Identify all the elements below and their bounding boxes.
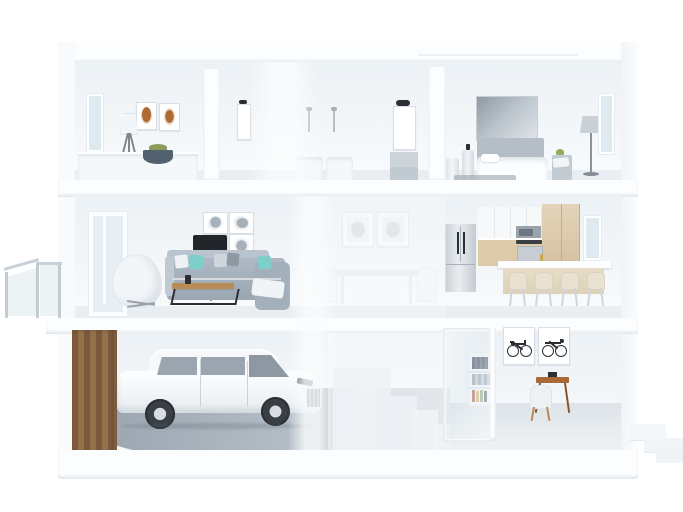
fridge-handle (457, 232, 459, 254)
guest-bowl (143, 150, 173, 164)
railing-post (58, 263, 61, 318)
bath-mirror-sconce (396, 100, 410, 106)
railing-glass-panel (40, 264, 59, 316)
right-exterior-wall (621, 42, 638, 454)
suv-mid-window (201, 357, 245, 375)
room-staircase (328, 333, 454, 450)
office-door-frame (490, 328, 495, 440)
guest-console (78, 152, 198, 180)
railing-top-rail (4, 258, 39, 270)
botanical-print-1 (203, 212, 228, 234)
cabinet-seam (494, 207, 495, 238)
sofa-pillow-teal-1 (188, 254, 203, 269)
bath-faucet-2-head (331, 107, 337, 111)
fridge-door-seam (460, 226, 461, 262)
botanical-print-2 (229, 212, 254, 234)
bar-stool (586, 272, 604, 306)
suv-door-seam (247, 361, 248, 407)
master-floor-lamp-base (583, 172, 599, 176)
office-glass-door (443, 328, 496, 442)
railing-post (5, 272, 8, 318)
master-wall-art (476, 96, 538, 141)
desk-laptop (548, 372, 557, 377)
island-decor (540, 254, 543, 261)
print-motif (208, 216, 223, 230)
cutaway-glare-band (248, 62, 318, 180)
guest-art-2 (159, 103, 180, 131)
bicycle-poster-2 (538, 327, 570, 365)
bike-drop-handlebar (560, 339, 564, 343)
stool-leg (561, 288, 565, 306)
coffee-table-frame (170, 289, 239, 305)
office-chair (530, 385, 552, 409)
floor-slab-1 (58, 180, 638, 196)
bath-mirror (393, 106, 416, 150)
bicycle-poster-1 (503, 327, 535, 365)
fridge-drawer-seam (446, 264, 475, 265)
coffee-table-item (185, 275, 191, 284)
master-floor-lamp-pole (590, 133, 592, 173)
guest-window (87, 94, 103, 152)
sofa-pillow-teal-2 (257, 255, 271, 269)
island-counter (498, 261, 611, 268)
guest-art-1-motif (141, 107, 152, 124)
master-window (599, 94, 614, 154)
railing-glass-panel (7, 268, 37, 316)
master-pillow (481, 154, 499, 162)
garage-wood-wall (72, 330, 117, 454)
master-bench-throw (553, 157, 570, 168)
railing-post (36, 262, 39, 318)
stool-leg (535, 288, 539, 306)
print-motif (234, 216, 249, 230)
guest-wall-relief (183, 108, 196, 126)
railing-top-rail (38, 262, 62, 265)
bike-wheel (542, 345, 554, 357)
stool-leg (574, 288, 578, 306)
cabinet-seam (510, 207, 511, 238)
room-kitchen (440, 196, 621, 318)
fridge-handle (463, 232, 465, 254)
dining-haze (318, 196, 446, 318)
microwave-window (519, 229, 533, 236)
stool-leg (587, 288, 591, 306)
room-office (440, 333, 621, 450)
bath-sink-2 (326, 157, 353, 180)
cabinet-seam (561, 204, 562, 262)
bath-small-sconce (239, 100, 247, 104)
bar-stool (508, 272, 526, 306)
master-table-lamp (466, 144, 470, 150)
balcony-railing (2, 254, 64, 320)
suv-front-wheel (261, 397, 290, 426)
sofa-pillow-dark (226, 252, 239, 266)
bike-handlebar (524, 340, 526, 345)
room-guest-bedroom (75, 62, 205, 180)
bath-faucet-2 (333, 109, 335, 132)
sofa-pillow-gray (214, 254, 228, 268)
stool-leg (600, 288, 604, 306)
guest-art-2-motif (164, 108, 175, 125)
roof-parapet-line (418, 54, 578, 56)
entry-step-3 (656, 450, 683, 463)
suv-door-seam (200, 359, 201, 407)
bar-stool (534, 272, 552, 306)
bar-stool (560, 272, 578, 306)
guest-art-1 (136, 102, 157, 130)
guest-lamp-shade (120, 113, 138, 135)
roof-slab (58, 42, 638, 62)
stair-haze (328, 333, 454, 450)
bike-seat (510, 341, 514, 343)
kitchen-window (584, 216, 601, 260)
stool-leg (522, 288, 526, 306)
living-window-mullion (103, 216, 106, 304)
fridge (445, 224, 476, 292)
base-slab (58, 450, 638, 478)
suv-rear-window (157, 357, 197, 375)
bath-vanity (390, 152, 418, 180)
room-living (75, 196, 305, 318)
stool-leg (548, 288, 552, 306)
stool-leg (509, 288, 513, 306)
tall-cabinets (542, 204, 580, 262)
sofa-pillow-white (174, 254, 188, 268)
egg-chair (112, 254, 162, 308)
cooktop (516, 240, 542, 244)
suv-windshield (249, 355, 289, 377)
scene-stage (0, 0, 683, 512)
room-master-bedroom (444, 62, 621, 180)
